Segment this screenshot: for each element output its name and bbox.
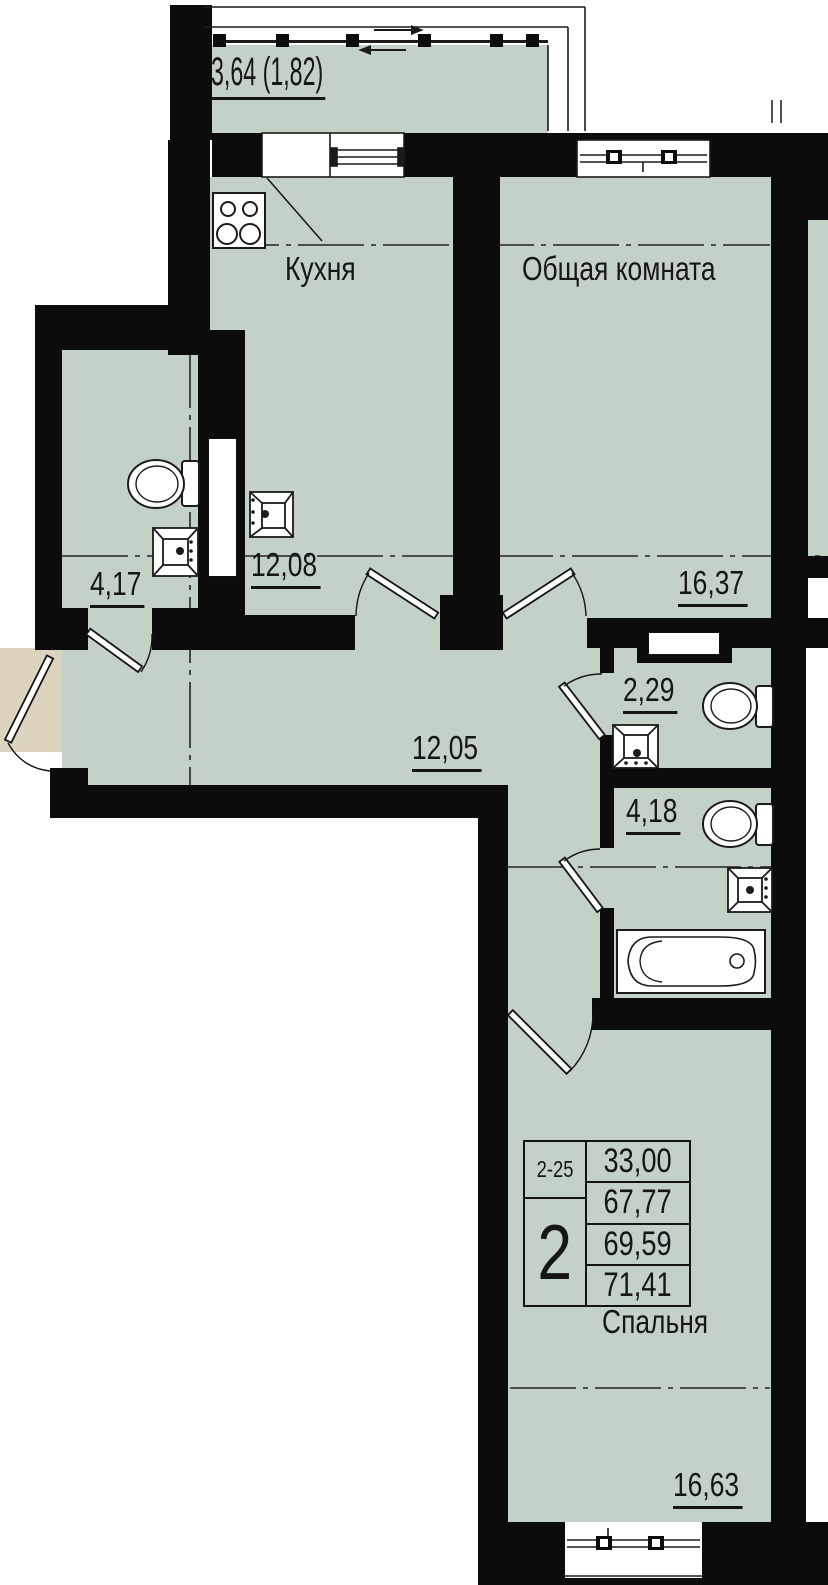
area-value-cell: 33,00 xyxy=(587,1142,689,1183)
kitchen-area-label: 12,08 xyxy=(251,548,320,589)
hall-area-label: 12,05 xyxy=(412,731,481,772)
area-value-cell: 69,59 xyxy=(587,1225,689,1266)
floors-range-cell: 2-25 xyxy=(525,1142,585,1199)
toilet-icon xyxy=(128,460,199,508)
wc-area-label: 2,29 xyxy=(623,673,678,714)
washbasin-icon xyxy=(153,528,198,576)
room-count-cell: 2 xyxy=(525,1199,585,1305)
stove-icon xyxy=(213,193,265,248)
bath-area-label: 4,18 xyxy=(626,794,681,835)
washbasin-icon xyxy=(613,725,658,768)
toilet-icon xyxy=(703,683,773,729)
bedroom-name-label: Спальня xyxy=(602,1305,708,1338)
floor-plan: 3,64 (1,82) Кухня Общая комната 12,08 4,… xyxy=(0,0,828,1585)
counter-line xyxy=(267,178,322,241)
kitchen-name-label: Кухня xyxy=(285,252,356,285)
bath-small-area-label: 4,17 xyxy=(90,567,145,608)
bathtub-icon xyxy=(617,930,765,993)
washbasin-icon xyxy=(728,868,772,912)
area-value-cell: 71,41 xyxy=(587,1266,689,1305)
fixtures-layer xyxy=(0,0,828,1585)
apartment-info-table: 2-25 2 33,00 67,77 69,59 71,41 xyxy=(523,1140,691,1307)
neighbor-lines xyxy=(772,100,781,123)
window-icon xyxy=(565,1528,702,1576)
bedroom-area-label: 16,63 xyxy=(673,1468,742,1509)
balcony-glazing xyxy=(213,34,548,47)
living-name-label: Общая комната xyxy=(522,252,716,285)
living-area-label: 16,37 xyxy=(678,566,747,607)
toilet-icon xyxy=(703,801,773,847)
door-leaf-icon xyxy=(5,569,605,1074)
window-icon xyxy=(577,140,710,177)
area-value-cell: 67,77 xyxy=(587,1183,689,1224)
window-icon xyxy=(262,133,404,177)
balcony-area-label: 3,64 (1,82) xyxy=(211,52,326,100)
kitchen-sink-icon xyxy=(250,492,293,537)
